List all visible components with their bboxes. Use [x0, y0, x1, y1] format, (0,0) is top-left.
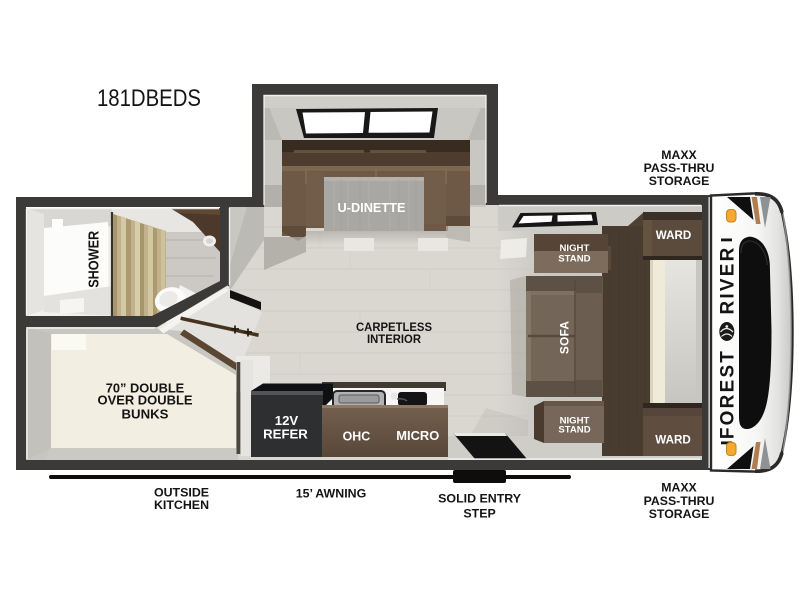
svg-text:SOLID ENTRY: SOLID ENTRY: [438, 492, 522, 506]
svg-text:FOREST: FOREST: [718, 349, 739, 439]
svg-text:PASS-THRU: PASS-THRU: [644, 161, 715, 175]
svg-text:REFER: REFER: [263, 426, 308, 441]
svg-text:U-DINETTE: U-DINETTE: [338, 201, 406, 215]
svg-text:STORAGE: STORAGE: [649, 507, 710, 521]
svg-text:STORAGE: STORAGE: [649, 174, 710, 188]
svg-text:15’ AWNING: 15’ AWNING: [296, 486, 366, 500]
svg-text:PASS-THRU: PASS-THRU: [644, 494, 715, 508]
svg-text:181DBEDS: 181DBEDS: [97, 85, 201, 112]
svg-text:KITCHEN: KITCHEN: [154, 498, 209, 512]
svg-text:OHC: OHC: [343, 429, 371, 444]
svg-text:INTERIOR: INTERIOR: [367, 332, 421, 346]
svg-text:STEP: STEP: [463, 507, 495, 521]
svg-text:MAXX: MAXX: [661, 148, 697, 162]
svg-text:STAND: STAND: [558, 253, 590, 264]
svg-text:WARD: WARD: [656, 230, 692, 242]
svg-text:SHOWER: SHOWER: [87, 230, 103, 287]
svg-text:WARD: WARD: [655, 435, 691, 447]
svg-text:BUNKS: BUNKS: [122, 406, 169, 421]
svg-text:SOFA: SOFA: [558, 321, 572, 354]
svg-text:STAND: STAND: [558, 425, 590, 436]
svg-text:MICRO: MICRO: [396, 428, 439, 443]
svg-text:RIVER: RIVER: [718, 245, 739, 314]
svg-text:MAXX: MAXX: [661, 481, 697, 495]
